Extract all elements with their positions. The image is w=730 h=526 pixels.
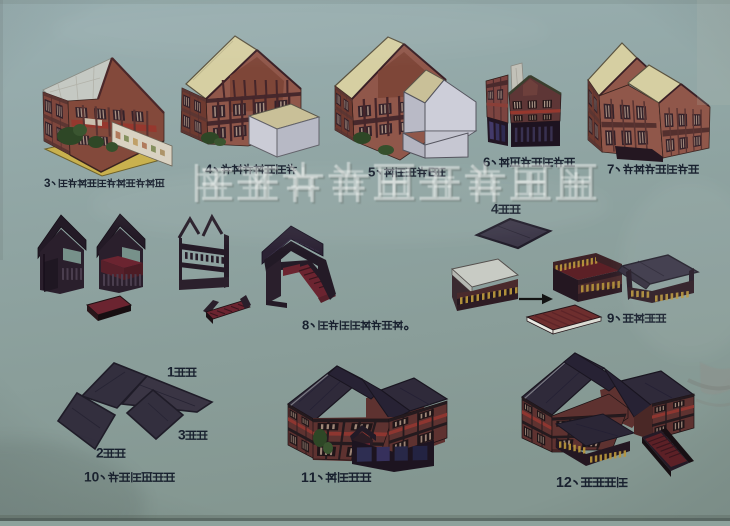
svg-text:8: 8: [302, 318, 309, 333]
svg-text:7: 7: [607, 162, 614, 177]
svg-text:2: 2: [564, 475, 572, 491]
svg-text:1: 1: [309, 469, 317, 485]
svg-text:3: 3: [44, 177, 51, 190]
svg-text:1: 1: [167, 365, 175, 380]
svg-text:9: 9: [607, 311, 614, 326]
svg-text:1: 1: [301, 469, 309, 485]
svg-text:3: 3: [178, 428, 186, 443]
svg-text:1: 1: [556, 475, 564, 491]
